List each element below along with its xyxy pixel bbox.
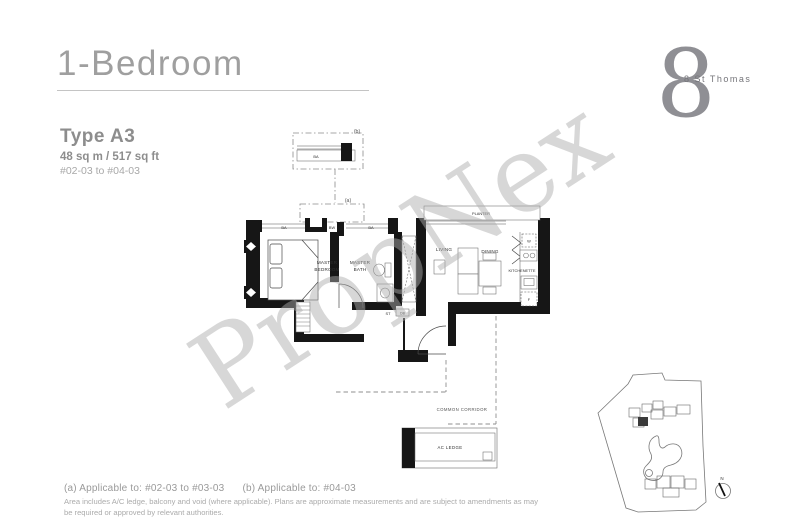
svg-text:BATH: BATH (354, 267, 367, 272)
applicable-b: (b) Applicable to: #04-03 (242, 483, 355, 494)
label-common-corridor: COMMON CORRIDOR (437, 407, 488, 412)
dining-chair (483, 253, 496, 260)
label-master-bath: MASTER (350, 260, 371, 265)
keyplan-bottom-tower (645, 476, 696, 497)
label-bw-mid: BW (329, 225, 336, 230)
dining-table (479, 261, 501, 286)
floorplan-brochure-page: 1-Bedroom 8 8 St Thomas Type A3 48 sq m … (0, 0, 800, 528)
keyplan-pool (644, 436, 682, 481)
label-ba-right: BA (368, 225, 374, 230)
label-store: ST (386, 311, 392, 316)
label-ba-b: BA (313, 154, 319, 159)
site-boundary (598, 373, 706, 512)
marker-b: (b) (354, 129, 361, 135)
marker-a: (a) (345, 198, 352, 204)
master-bedroom: MASTER BEDROOM (268, 240, 363, 332)
label-ac-ledge: AC LEDGE (438, 445, 463, 450)
ac-ledge: AC LEDGE (402, 428, 497, 468)
floorplan-drawing: (b) BA (a) BA BW BA (0, 0, 800, 528)
tv-console (434, 260, 445, 274)
unit-location-highlight (638, 417, 648, 426)
folding-door (512, 236, 521, 264)
label-kitchenette: KITCHENETTE (508, 268, 535, 273)
label-db: DB (400, 311, 405, 315)
svg-text:BEDROOM: BEDROOM (314, 267, 339, 272)
north-label: N (720, 476, 723, 481)
toilet-cistern (385, 263, 391, 277)
master-bath: MASTER BATH (350, 260, 393, 302)
keyplan-top-tower (629, 401, 690, 427)
disclaimer: Area includes A/C ledge, balcony and voi… (64, 497, 538, 518)
kitchenette: W KITCHENETTE F (508, 232, 537, 306)
label-washer: W (527, 239, 531, 244)
key-plan: N (598, 373, 731, 512)
label-ba-left: BA (281, 225, 287, 230)
label-planter: PLANTER (472, 211, 490, 216)
north-arrow-icon: N (716, 476, 731, 499)
label-living: LIVING (436, 247, 452, 252)
toilet-bowl (374, 264, 385, 276)
footer: (a) Applicable to: #02-03 to #03-03(b) A… (64, 483, 538, 518)
entrance-door (418, 326, 446, 354)
sofa (458, 248, 478, 274)
applicable-a: (a) Applicable to: #02-03 to #03-03 (64, 483, 224, 494)
disclaimer-line-1: Area includes A/C ledge, balcony and voi… (64, 497, 538, 508)
option-b-ledge: (b) BA (293, 129, 363, 203)
common-corridor: COMMON CORRIDOR (336, 316, 496, 424)
label-master-bedroom: MASTER (317, 260, 338, 265)
disclaimer-line-2: be required or approved by relevant auth… (64, 508, 538, 519)
applicability-note: (a) Applicable to: #02-03 to #03-03(b) A… (64, 483, 538, 494)
